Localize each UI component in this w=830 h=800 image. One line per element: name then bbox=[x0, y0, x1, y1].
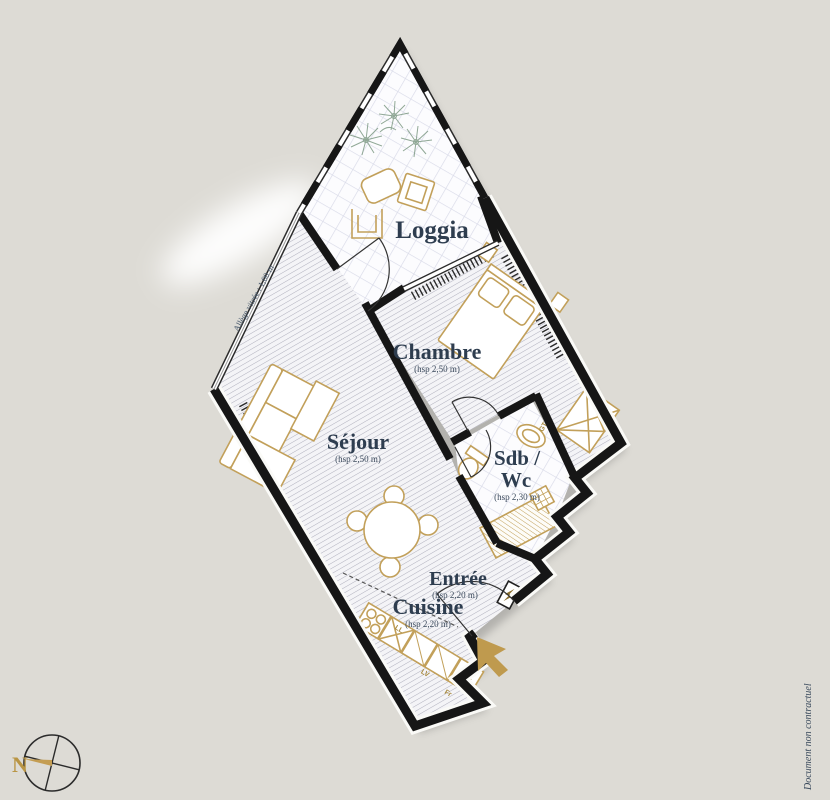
room-hsp-sdb: (hsp 2,30 m) bbox=[494, 492, 540, 502]
north-label: N bbox=[12, 752, 28, 777]
room-label-sdb-2: Wc bbox=[501, 468, 531, 492]
room-label-loggia: Loggia bbox=[395, 217, 469, 244]
room-label-chambre: Chambre bbox=[393, 339, 482, 364]
room-label-sejour: Séjour bbox=[327, 429, 390, 454]
room-label-entree: Entrée bbox=[429, 568, 487, 590]
floor-plan-svg: LL LV Fr GT GT bbox=[0, 0, 830, 800]
room-hsp-chambre: (hsp 2,50 m) bbox=[414, 364, 460, 374]
room-label-cuisine: Cuisine bbox=[393, 594, 464, 619]
disclaimer-label: Document non contractuel bbox=[803, 683, 814, 791]
room-hsp-sejour: (hsp 2,50 m) bbox=[335, 454, 381, 464]
room-label-sdb-1: Sdb / bbox=[494, 446, 541, 470]
room-hsp-cuisine: (hsp 2,20 m) bbox=[405, 619, 451, 629]
compass: N bbox=[12, 735, 80, 791]
north-needle-icon bbox=[24, 759, 52, 766]
floor-plan-page: LL LV Fr GT GT bbox=[0, 0, 830, 800]
